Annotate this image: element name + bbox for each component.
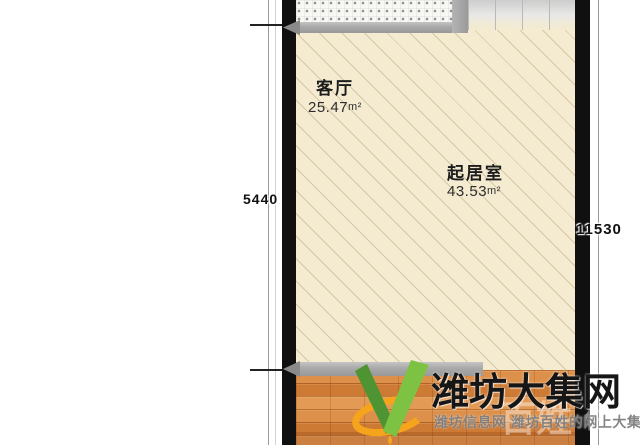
watermark-title: 潍坊大集网	[431, 371, 621, 415]
watermark-subtitle: 潍坊信息网 潍坊百姓的网上大集	[434, 412, 640, 432]
dimension-label-left: 5440	[243, 191, 278, 207]
room-area-value: 25.47	[308, 99, 348, 116]
balcony-sill	[296, 22, 468, 33]
dimension-label-right: 11530	[576, 221, 622, 238]
room-label-qijushi: 起居室	[447, 159, 504, 184]
dimension-tick-top	[250, 24, 284, 26]
dimension-tick-bottom	[250, 369, 284, 371]
room-area-unit: m²	[348, 101, 362, 113]
balcony-sill-right	[452, 0, 468, 33]
room-area-keting: 25.47m²	[308, 99, 362, 116]
room-area-value: 43.53	[447, 183, 487, 200]
daji-v-logo-icon	[350, 360, 432, 445]
wall-left	[282, 0, 296, 445]
window-glazing	[468, 0, 575, 30]
balcony-tile-floor	[296, 0, 452, 23]
room-area-qijushi: 43.53m²	[447, 183, 501, 200]
room-label-keting: 客厅	[316, 74, 354, 99]
living-room-floor	[296, 0, 575, 371]
dimension-line-left	[268, 0, 269, 445]
room-area-unit: m²	[487, 185, 501, 197]
floorplan-canvas: 5440 11530 客厅 25.47m² 起居室 43.53m² 百姓 住 潍…	[0, 0, 640, 445]
dimension-line-left-secondary	[275, 0, 276, 445]
